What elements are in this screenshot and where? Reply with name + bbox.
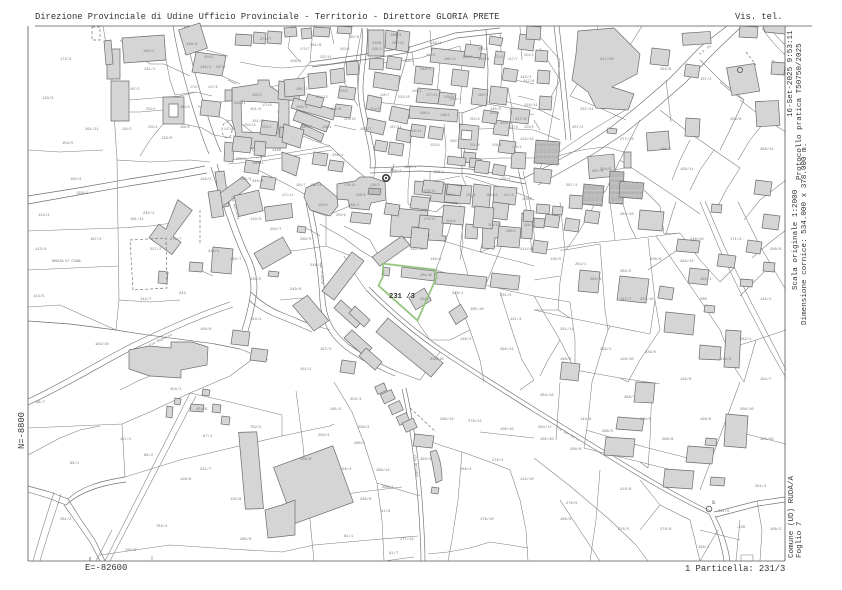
svg-text:224/10: 224/10 xyxy=(344,117,356,121)
svg-text:217/3: 217/3 xyxy=(508,125,518,129)
svg-text:146/3: 146/3 xyxy=(370,183,380,187)
svg-text:283/1: 283/1 xyxy=(318,433,330,438)
svg-text:782/4: 782/4 xyxy=(156,524,168,529)
svg-text:142/8: 142/8 xyxy=(580,417,592,422)
svg-text:211/8: 211/8 xyxy=(470,143,480,147)
svg-text:211/9: 211/9 xyxy=(504,193,514,197)
svg-text:190/2: 190/2 xyxy=(478,93,488,97)
svg-text:177/11: 177/11 xyxy=(426,93,438,97)
svg-text:209/10: 209/10 xyxy=(740,407,754,412)
svg-text:287/1: 287/1 xyxy=(566,183,578,188)
svg-text:130/1: 130/1 xyxy=(322,125,332,129)
svg-text:139/8: 139/8 xyxy=(444,95,454,99)
svg-text:152/2: 152/2 xyxy=(462,55,472,59)
svg-text:236/1: 236/1 xyxy=(332,153,344,158)
svg-text:231/7: 231/7 xyxy=(420,297,431,302)
svg-text:237/10: 237/10 xyxy=(640,297,654,302)
svg-text:197/1: 197/1 xyxy=(120,437,132,442)
svg-text:139/11: 139/11 xyxy=(310,183,322,187)
svg-text:191/1: 191/1 xyxy=(700,277,712,282)
svg-text:203/1: 203/1 xyxy=(236,157,246,161)
svg-text:206/6: 206/6 xyxy=(300,457,312,462)
svg-text:177/12: 177/12 xyxy=(400,537,414,542)
svg-text:762/2: 762/2 xyxy=(250,425,262,430)
svg-text:143/6: 143/6 xyxy=(478,57,490,62)
svg-text:151/2: 151/2 xyxy=(250,107,262,112)
svg-text:277/12: 277/12 xyxy=(620,137,634,142)
svg-text:202/8: 202/8 xyxy=(340,47,350,51)
svg-text:98/2: 98/2 xyxy=(144,453,154,458)
svg-text:170/12: 170/12 xyxy=(424,189,436,193)
svg-text:146/4: 146/4 xyxy=(186,42,198,47)
svg-text:204/5: 204/5 xyxy=(600,167,612,172)
svg-text:135/3: 135/3 xyxy=(240,177,252,182)
svg-text:237/11: 237/11 xyxy=(580,107,594,112)
svg-text:159/8: 159/8 xyxy=(730,117,742,122)
svg-text:253/1: 253/1 xyxy=(262,125,272,129)
svg-text:216/6: 216/6 xyxy=(620,487,632,492)
svg-text:144/1: 144/1 xyxy=(250,317,262,322)
svg-text:280: 280 xyxy=(700,298,708,302)
svg-text:187/4: 187/4 xyxy=(90,237,102,242)
svg-text:181/11: 181/11 xyxy=(130,217,144,222)
svg-text:191/7: 191/7 xyxy=(296,183,306,187)
svg-text:231/W: 231/W xyxy=(420,273,432,278)
svg-text:E=-82600: E=-82600 xyxy=(85,563,127,573)
svg-text:132/6: 132/6 xyxy=(230,497,242,502)
svg-text:170/11: 170/11 xyxy=(344,183,356,187)
svg-text:105/10: 105/10 xyxy=(470,307,484,312)
svg-text:183/10: 183/10 xyxy=(95,342,109,347)
svg-text:171/3: 171/3 xyxy=(730,237,742,242)
svg-text:243/1: 243/1 xyxy=(412,89,422,93)
svg-text:148/1: 148/1 xyxy=(200,65,212,70)
svg-text:284/17: 284/17 xyxy=(538,425,552,430)
svg-text:237/4: 237/4 xyxy=(216,65,226,69)
svg-text:288/1: 288/1 xyxy=(354,441,366,446)
svg-text:128/2: 128/2 xyxy=(200,177,212,182)
svg-text:228/5: 228/5 xyxy=(492,143,502,147)
svg-text:217/10: 217/10 xyxy=(600,57,614,62)
svg-text:256/1: 256/1 xyxy=(446,193,456,197)
svg-text:251/9: 251/9 xyxy=(470,117,480,121)
svg-text:185/13: 185/13 xyxy=(296,87,308,91)
svg-text:242/1: 242/1 xyxy=(143,211,155,216)
svg-text:218/13: 218/13 xyxy=(488,223,500,227)
svg-text:278/12: 278/12 xyxy=(468,419,482,424)
svg-text:167/13: 167/13 xyxy=(392,41,404,45)
svg-text:166/9: 166/9 xyxy=(560,517,572,522)
svg-text:133/5: 133/5 xyxy=(161,136,173,141)
svg-text:782/8: 782/8 xyxy=(125,548,137,553)
svg-text:113/4: 113/4 xyxy=(35,247,47,252)
svg-text:190/8: 190/8 xyxy=(330,107,342,112)
svg-text:-230: -230 xyxy=(736,526,746,530)
svg-text:146/1: 146/1 xyxy=(760,297,772,302)
svg-text:208/4: 208/4 xyxy=(506,229,516,233)
svg-text:232/3: 232/3 xyxy=(720,357,732,362)
svg-text:166/4: 166/4 xyxy=(340,467,352,472)
svg-text:243: 243 xyxy=(179,292,187,296)
svg-text:255/2: 255/2 xyxy=(466,193,476,197)
svg-text:189/4: 189/4 xyxy=(404,59,414,63)
svg-text:128/8: 128/8 xyxy=(180,477,192,482)
svg-text:224/1: 224/1 xyxy=(426,53,436,57)
svg-text:253/4: 253/4 xyxy=(350,397,362,402)
svg-text:F: F xyxy=(391,167,394,173)
svg-text:186/10: 186/10 xyxy=(486,193,498,197)
svg-text:156/3: 156/3 xyxy=(524,223,534,227)
svg-text:1327/1: 1327/1 xyxy=(404,165,416,170)
svg-text:230/5: 230/5 xyxy=(300,237,312,242)
svg-text:147/8: 147/8 xyxy=(224,127,234,131)
svg-text:240/1: 240/1 xyxy=(208,249,220,254)
svg-text:162/1: 162/1 xyxy=(590,277,602,282)
svg-text:261/6: 261/6 xyxy=(310,43,322,48)
svg-text:258/7: 258/7 xyxy=(450,139,460,143)
svg-text:204/1: 204/1 xyxy=(204,55,214,59)
svg-text:131/1: 131/1 xyxy=(144,67,156,72)
svg-text:106/10: 106/10 xyxy=(500,427,514,432)
svg-text:169/11: 169/11 xyxy=(680,167,694,172)
svg-text:230/12: 230/12 xyxy=(440,417,454,422)
svg-text:Scala originale 1:2000: Scala originale 1:2000 xyxy=(792,189,800,290)
svg-text:113/5: 113/5 xyxy=(33,294,45,299)
svg-text:176/9: 176/9 xyxy=(338,89,348,93)
svg-text:172/3: 172/3 xyxy=(60,57,72,62)
svg-text:127/7: 127/7 xyxy=(620,297,631,302)
svg-text:204/7: 204/7 xyxy=(270,227,281,232)
svg-text:133/6: 133/6 xyxy=(318,203,328,207)
svg-text:136/5: 136/5 xyxy=(550,257,562,262)
svg-text:236/6: 236/6 xyxy=(360,497,372,502)
svg-text:158/3: 158/3 xyxy=(522,197,532,201)
svg-text:135/8: 135/8 xyxy=(478,47,488,51)
svg-text:254/6: 254/6 xyxy=(196,407,208,412)
svg-text:168/9: 168/9 xyxy=(560,357,572,362)
svg-text:217/6: 217/6 xyxy=(523,79,535,84)
svg-text:234/10: 234/10 xyxy=(398,95,410,99)
svg-text:167/3: 167/3 xyxy=(130,87,140,91)
svg-text:163/10: 163/10 xyxy=(760,437,774,442)
svg-text:153/7: 153/7 xyxy=(360,127,371,132)
svg-text:136/2: 136/2 xyxy=(460,337,472,342)
svg-text:219/6: 219/6 xyxy=(446,219,456,223)
svg-text:229/5: 229/5 xyxy=(645,350,657,355)
svg-text:158/1: 158/1 xyxy=(296,105,308,110)
svg-text:229/4: 229/4 xyxy=(490,111,500,115)
svg-text:1328: 1328 xyxy=(272,149,282,153)
svg-text:194/3: 194/3 xyxy=(122,127,132,131)
svg-text:1 Particella: 231/3: 1 Particella: 231/3 xyxy=(685,564,785,574)
svg-text:159/11: 159/11 xyxy=(410,129,422,133)
svg-text:240/2: 240/2 xyxy=(252,179,264,184)
svg-text:112/7: 112/7 xyxy=(140,297,151,302)
svg-text:16-Set-2025 9:53:11: 16-Set-2025 9:53:11 xyxy=(787,30,795,117)
svg-text:95/8: 95/8 xyxy=(350,35,360,40)
svg-text:238/10: 238/10 xyxy=(430,357,444,362)
svg-text:N=-8800: N=-8800 xyxy=(17,412,27,449)
svg-text:98/7: 98/7 xyxy=(36,400,45,405)
svg-text:91/1: 91/1 xyxy=(344,534,354,539)
svg-text:218/11: 218/11 xyxy=(524,103,538,108)
svg-text:199/6: 199/6 xyxy=(700,417,712,422)
svg-text:164/7: 164/7 xyxy=(760,377,771,382)
svg-text:Dimensione cornice: 534.000 x: Dimensione cornice: 534.000 x 378.000 m. xyxy=(801,143,809,325)
svg-text:264/9: 264/9 xyxy=(640,417,652,422)
svg-text:293/3: 293/3 xyxy=(420,457,432,462)
svg-text:140/7: 140/7 xyxy=(380,93,390,97)
svg-text:136/2: 136/2 xyxy=(512,145,522,149)
svg-text:102/2: 102/2 xyxy=(70,177,82,182)
svg-text:217/2: 217/2 xyxy=(515,117,527,122)
svg-text:238/4: 238/4 xyxy=(500,177,510,182)
svg-text:276/8: 276/8 xyxy=(660,527,672,532)
svg-text:110/3: 110/3 xyxy=(250,217,262,222)
svg-text:238/4: 238/4 xyxy=(434,170,444,175)
svg-text:231/5: 231/5 xyxy=(500,293,512,298)
svg-text:180/3: 180/3 xyxy=(390,33,402,38)
svg-text:237/11: 237/11 xyxy=(320,55,332,59)
svg-text:234/5: 234/5 xyxy=(524,125,534,129)
svg-text:273/7: 273/7 xyxy=(260,37,271,42)
svg-text:270/7: 270/7 xyxy=(170,237,181,242)
svg-text:173/11: 173/11 xyxy=(424,217,436,221)
svg-text:107/2: 107/2 xyxy=(700,77,712,82)
svg-text:Foglio 7: Foglio 7 xyxy=(796,522,804,558)
svg-text:171/9: 171/9 xyxy=(262,103,272,107)
svg-text:252/1: 252/1 xyxy=(148,125,158,129)
svg-text:185/2: 185/2 xyxy=(330,407,342,412)
svg-text:196/11: 196/11 xyxy=(252,161,264,165)
svg-text:276/5: 276/5 xyxy=(566,501,578,506)
svg-text:284/16: 284/16 xyxy=(620,212,634,217)
svg-text:S: S xyxy=(712,500,715,506)
svg-text:97/1: 97/1 xyxy=(203,434,213,439)
svg-text:Comune (UD) RUDA/A: Comune (UD) RUDA/A xyxy=(788,476,796,558)
svg-text:288/8: 288/8 xyxy=(662,437,674,442)
svg-text:282/1: 282/1 xyxy=(740,337,752,342)
svg-text:113/3: 113/3 xyxy=(38,213,50,218)
svg-text:148/2: 148/2 xyxy=(440,113,450,117)
svg-text:133/3: 133/3 xyxy=(42,96,54,101)
svg-text:268/4: 268/4 xyxy=(460,467,472,472)
svg-text:246/10: 246/10 xyxy=(690,237,704,242)
svg-text:Direzione Provinciale di Udine: Direzione Provinciale di Udine Ufficio P… xyxy=(35,12,500,22)
svg-text:151/2: 151/2 xyxy=(300,367,312,372)
svg-text:105/10: 105/10 xyxy=(540,437,554,442)
svg-text:239/1: 239/1 xyxy=(600,347,612,352)
svg-text:121/4: 121/4 xyxy=(510,317,522,322)
svg-text:231 /3: 231 /3 xyxy=(389,293,415,301)
svg-text:288/6: 288/6 xyxy=(570,447,582,452)
svg-text:190/13: 190/13 xyxy=(300,125,312,129)
svg-text:285/9: 285/9 xyxy=(240,537,252,542)
svg-text:261/2: 261/2 xyxy=(60,517,72,522)
svg-text:223/8: 223/8 xyxy=(430,143,440,147)
svg-text:214/10: 214/10 xyxy=(520,247,534,252)
svg-text:276/5: 276/5 xyxy=(618,527,630,532)
svg-text:288/1: 288/1 xyxy=(382,485,394,490)
svg-text:149/1: 149/1 xyxy=(430,257,442,262)
svg-text:169/12: 169/12 xyxy=(444,57,456,61)
svg-text:226/6: 226/6 xyxy=(650,257,662,262)
svg-text:238/1: 238/1 xyxy=(348,203,360,208)
svg-text:180/4: 180/4 xyxy=(420,111,430,115)
svg-text:288/2: 288/2 xyxy=(358,425,370,430)
svg-text:1328: 1328 xyxy=(372,42,382,46)
svg-text:191/11: 191/11 xyxy=(85,127,99,132)
svg-text:298/2: 298/2 xyxy=(698,545,710,550)
svg-text:214/9: 214/9 xyxy=(370,107,380,111)
svg-text:288/5: 288/5 xyxy=(602,429,614,434)
svg-text:268/11: 268/11 xyxy=(760,147,774,152)
svg-text:91/8: 91/8 xyxy=(381,509,391,514)
svg-text:125/7: 125/7 xyxy=(230,257,241,262)
svg-text:BRAIDA DI CIABA: BRAIDA DI CIABA xyxy=(52,259,81,263)
svg-text:104/9: 104/9 xyxy=(200,327,212,332)
svg-text:136/1: 136/1 xyxy=(143,49,155,54)
svg-text:156/1: 156/1 xyxy=(290,59,302,64)
svg-text:146/1: 146/1 xyxy=(430,41,442,46)
svg-text:207/2: 207/2 xyxy=(572,125,584,130)
svg-text:106/1: 106/1 xyxy=(660,147,672,152)
svg-text:149/11: 149/11 xyxy=(410,247,424,252)
svg-text:227/2: 227/2 xyxy=(150,247,162,252)
svg-text:172/7: 172/7 xyxy=(300,47,310,51)
svg-text:252/1: 252/1 xyxy=(146,107,156,111)
svg-text:255/9: 255/9 xyxy=(336,213,346,217)
svg-text:288/12: 288/12 xyxy=(376,468,390,473)
svg-text:246/2: 246/2 xyxy=(420,67,432,72)
svg-text:284/16: 284/16 xyxy=(540,393,554,398)
svg-text:288/7: 288/7 xyxy=(624,395,635,400)
svg-text:184/6: 184/6 xyxy=(180,105,190,109)
svg-text:239/2: 239/2 xyxy=(372,47,382,51)
svg-text:229/1: 229/1 xyxy=(452,291,464,296)
svg-text:284/5: 284/5 xyxy=(620,269,632,274)
svg-text:278/1: 278/1 xyxy=(492,458,504,463)
svg-text:123/12: 123/12 xyxy=(520,137,534,142)
svg-text:291/5: 291/5 xyxy=(718,509,730,514)
svg-text:217/7: 217/7 xyxy=(508,57,518,61)
svg-text:126/9: 126/9 xyxy=(680,377,692,382)
svg-text:147/6: 147/6 xyxy=(208,85,218,89)
svg-text:169/6: 169/6 xyxy=(180,125,190,129)
svg-text:197/2: 197/2 xyxy=(320,347,332,352)
svg-text:234/13: 234/13 xyxy=(244,123,256,127)
svg-text:251/13: 251/13 xyxy=(316,95,328,99)
svg-text:193/4: 193/4 xyxy=(252,93,262,97)
svg-text:173/7: 173/7 xyxy=(190,85,200,89)
svg-text:251/11: 251/11 xyxy=(560,327,574,332)
svg-text:108/2: 108/2 xyxy=(770,527,782,532)
svg-text:266/9: 266/9 xyxy=(770,247,782,252)
svg-text:91/7: 91/7 xyxy=(389,551,398,556)
svg-text:254/1: 254/1 xyxy=(575,262,587,267)
svg-text:153/5: 153/5 xyxy=(62,141,74,146)
svg-text:239/6: 239/6 xyxy=(356,193,366,197)
svg-text:249/6: 249/6 xyxy=(290,287,302,292)
svg-text:294/8: 294/8 xyxy=(660,67,672,72)
svg-text:230/5: 230/5 xyxy=(250,277,262,282)
svg-text:221/7: 221/7 xyxy=(200,467,211,472)
svg-text:120/10: 120/10 xyxy=(620,357,634,362)
svg-text:171/9: 171/9 xyxy=(494,55,504,59)
svg-text:284/12: 284/12 xyxy=(680,259,694,264)
svg-text:257/12: 257/12 xyxy=(390,125,402,129)
svg-text:171/12: 171/12 xyxy=(282,193,294,197)
svg-text:254/1: 254/1 xyxy=(170,387,182,392)
svg-text:179/10: 179/10 xyxy=(480,517,494,522)
svg-text:226/11: 226/11 xyxy=(234,101,246,105)
svg-text:1329/2: 1329/2 xyxy=(76,191,88,196)
svg-text:298/11: 298/11 xyxy=(500,347,514,352)
svg-text:98/1: 98/1 xyxy=(70,461,80,466)
svg-text:Vis. tel.: Vis. tel. xyxy=(735,12,783,22)
svg-text:254/3: 254/3 xyxy=(524,53,534,57)
svg-text:110/10: 110/10 xyxy=(520,477,534,482)
svg-text:291/4: 291/4 xyxy=(755,484,767,489)
